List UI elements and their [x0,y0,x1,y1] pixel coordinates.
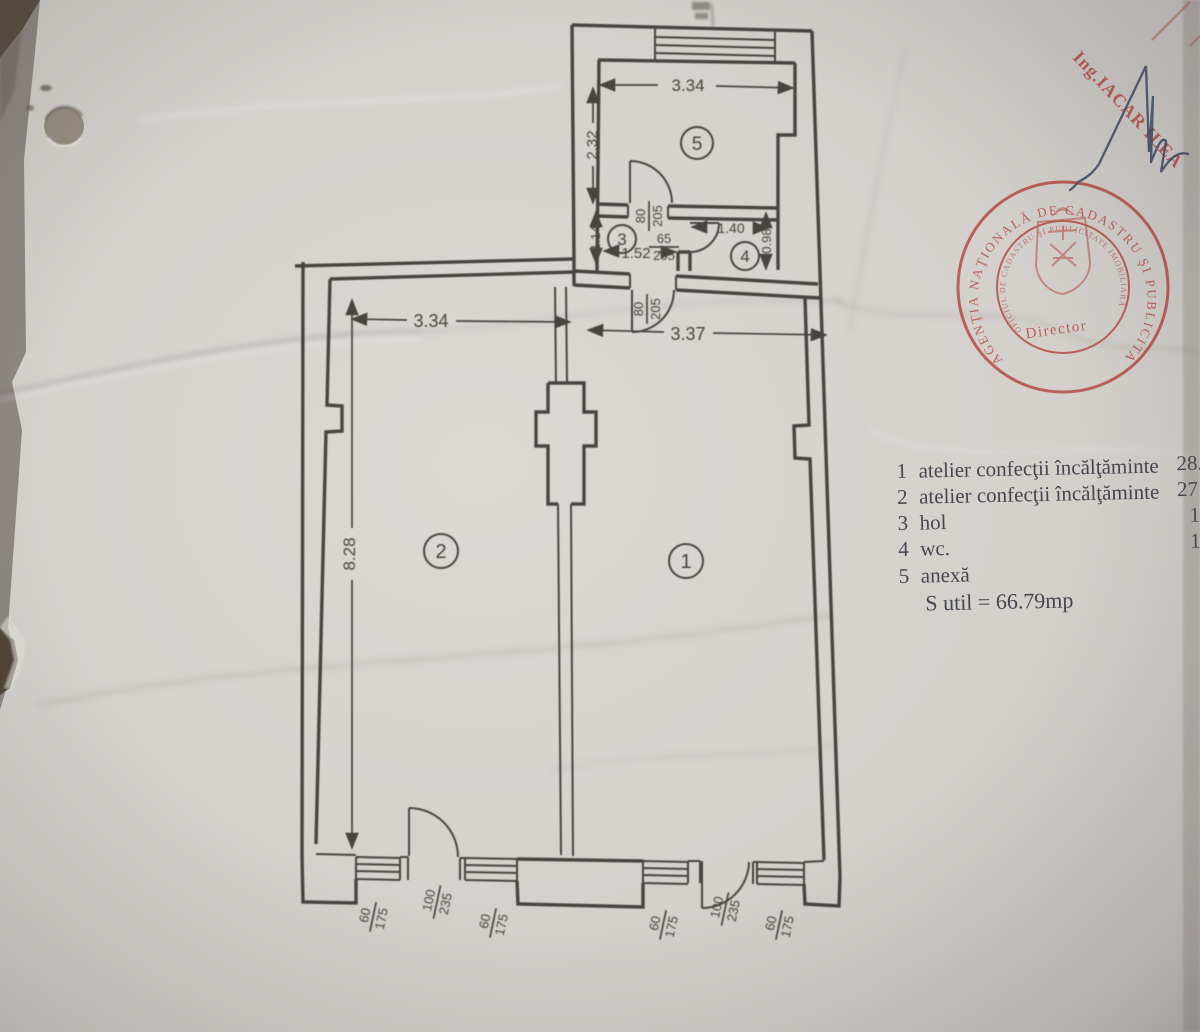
svg-text:4: 4 [898,537,910,561]
dim-room2-width: 3.34 [413,311,448,331]
punch-hole [44,107,84,146]
paper-edge-fold [1183,0,1200,1032]
svg-text:2: 2 [435,541,446,563]
dim-hall-height: 1.14 [588,225,603,250]
svg-text:5: 5 [899,564,910,588]
svg-text:4: 4 [740,247,749,266]
dim-room5-width: 3.34 [671,76,704,95]
svg-text:3: 3 [617,230,626,249]
svg-text:60: 60 [762,915,780,932]
svg-text:205: 205 [648,298,663,320]
svg-text:1: 1 [896,459,907,483]
dim-wc-height: 0.98 [759,228,774,253]
svg-text:80: 80 [633,209,648,223]
svg-text:atelier confecţii încălţăminte: atelier confecţii încălţăminte [918,454,1159,483]
svg-text:anexă: anexă [920,563,970,588]
legend-total: S util = 66.79mp [925,587,1074,615]
dim-room5-height: 2.32 [584,130,601,159]
scanned-floorplan-photo: 3.34 2.32 1.14 1.52 1.40 0.98 3.34 3.37 … [0,0,1200,1032]
svg-text:hol: hol [919,510,946,535]
dim-room1-width: 3.37 [670,324,705,344]
dim-wc-width: 1.40 [717,220,744,236]
svg-text:65: 65 [657,231,671,246]
svg-text:80: 80 [631,302,646,316]
svg-text:205: 205 [650,205,665,227]
svg-text:2: 2 [897,485,908,509]
svg-text:1: 1 [680,551,691,573]
svg-text:wc.: wc. [920,536,950,561]
svg-text:60: 60 [476,913,494,930]
svg-text:5: 5 [692,134,703,155]
edge-speck [26,105,34,111]
edge-speck [40,85,52,91]
svg-text:atelier confecţii încălţăminte: atelier confecţii încălţăminte [919,480,1160,509]
svg-text:60: 60 [646,915,664,932]
svg-text:3: 3 [897,511,908,535]
dim-room2-height: 8.28 [340,537,359,570]
svg-text:60: 60 [356,907,374,924]
svg-text:205: 205 [653,248,675,263]
